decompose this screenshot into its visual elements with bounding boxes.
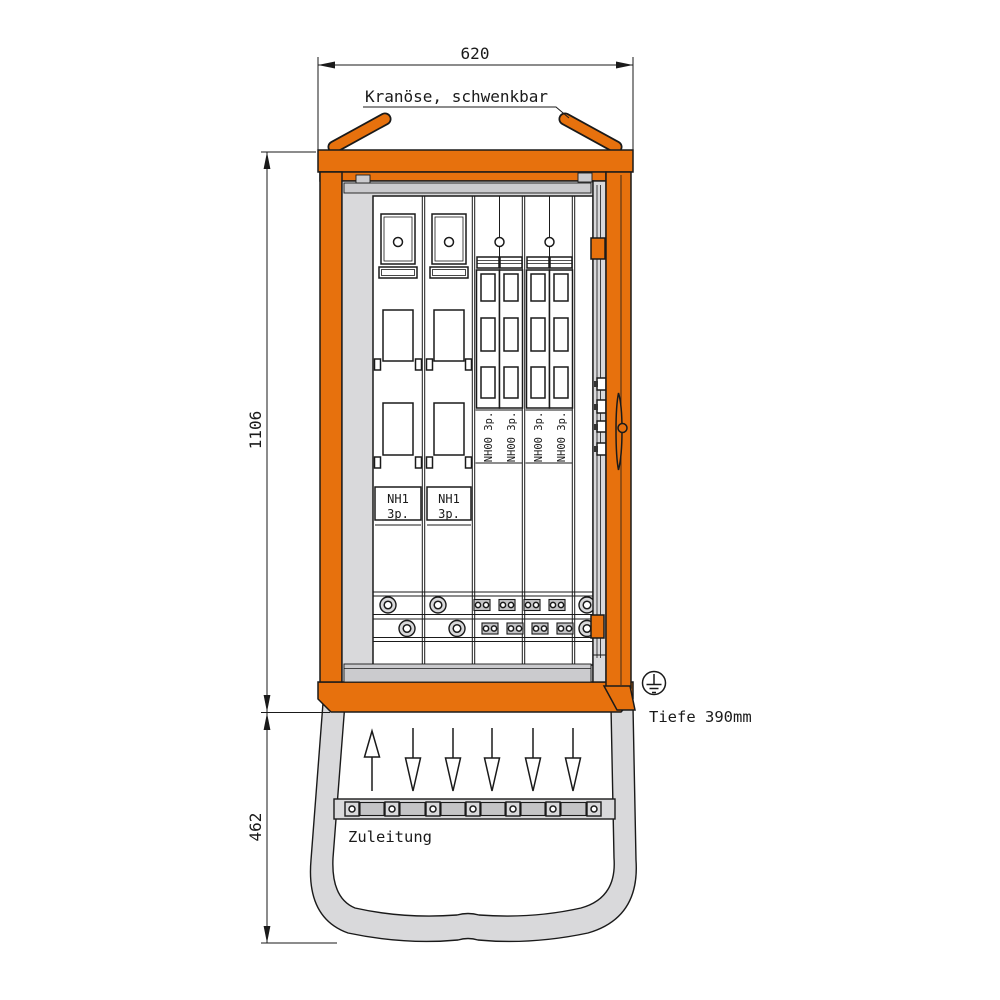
cable-entry-flap xyxy=(310,703,636,941)
interior-floor-strip xyxy=(344,664,591,682)
bolt xyxy=(380,597,396,613)
crane-eyelets xyxy=(334,119,616,147)
cable-clamp-rail xyxy=(334,799,615,819)
nh1-1-window-bottom xyxy=(383,403,413,455)
terminal-block xyxy=(524,600,540,611)
nh1-2-notch xyxy=(466,359,472,370)
nh00-knob-left-pair xyxy=(495,238,504,247)
cabinet-door xyxy=(604,172,635,710)
nh1-2-bar xyxy=(430,267,468,278)
interior-top-tab-right xyxy=(578,173,592,182)
terminal-block xyxy=(507,623,523,634)
roof-panel xyxy=(318,150,633,172)
nh00-strip-1-label: NH00 3p. xyxy=(483,412,495,463)
terminal-block xyxy=(474,600,490,611)
crane-note: Kranöse, schwenkbar xyxy=(363,87,569,118)
terminal-block xyxy=(549,600,565,611)
door-lock xyxy=(618,424,627,433)
door-hinge-strip xyxy=(591,181,606,682)
nh1-2-label-name: NH1 xyxy=(438,492,460,506)
nh1-1-notch xyxy=(416,457,422,468)
nh1-2-window-bottom xyxy=(434,403,464,455)
ground-symbol xyxy=(643,672,666,695)
nh1-2-notch xyxy=(427,359,433,370)
nh1-1-knob xyxy=(394,238,403,247)
dimension-body-height-value: 1106 xyxy=(246,411,265,450)
dimension-base-height-value: 462 xyxy=(246,813,265,842)
nh00-knob-right-pair xyxy=(545,238,554,247)
nh1-1-label-poles: 3p. xyxy=(387,507,409,521)
terminal-block xyxy=(482,623,498,634)
arrow-down xyxy=(485,728,500,791)
cabinet-roof xyxy=(318,150,633,172)
supply-label: Zuleitung xyxy=(348,828,432,846)
nh1-1-notch xyxy=(416,359,422,370)
bolt xyxy=(399,621,415,637)
dimension-body-height: 1106 xyxy=(246,152,330,713)
terminal-block xyxy=(499,600,515,611)
nh1-2-notch xyxy=(427,457,433,468)
nh1-1-bar xyxy=(379,267,417,278)
nh1-1-notch xyxy=(375,457,381,468)
bolt xyxy=(430,597,446,613)
nh1-2-window-top xyxy=(434,310,464,361)
hinge-latch-top xyxy=(591,238,605,259)
arrow-down xyxy=(566,728,581,791)
plinth-panel xyxy=(318,682,633,712)
nh1-1-window-top xyxy=(383,310,413,361)
crane-eyelet-right-fill xyxy=(565,119,616,147)
interior-top-tab-left xyxy=(356,175,370,183)
flap-tube xyxy=(310,703,636,941)
nh1-1-label-name: NH1 xyxy=(387,492,409,506)
bolt xyxy=(449,621,465,637)
depth-label: Tiefe 390mm xyxy=(649,708,752,726)
nh00-strip-4-label: NH00 3p. xyxy=(556,412,568,463)
wall-distribution-cabinet-drawing: NH1 3p. NH1 3p. NH00 3p. xyxy=(0,0,1000,1000)
arrow-up xyxy=(365,731,380,791)
crane-note-text: Kranöse, schwenkbar xyxy=(365,87,548,106)
arrow-down xyxy=(446,728,461,791)
arrow-down xyxy=(526,728,541,791)
terminal-block xyxy=(532,623,548,634)
nh1-2-label-poles: 3p. xyxy=(438,507,460,521)
flow-arrows xyxy=(365,728,581,791)
crane-eyelet-left-fill xyxy=(334,119,385,147)
drawing-canvas: NH1 3p. NH1 3p. NH00 3p. xyxy=(0,0,1000,1000)
nh1-2-notch xyxy=(466,457,472,468)
dimension-width-value: 620 xyxy=(461,44,490,63)
hinge-latch-bottom xyxy=(591,615,604,638)
base-plinth xyxy=(318,682,633,712)
nh00-strip-2-label: NH00 3p. xyxy=(506,412,518,463)
interior-top-rail xyxy=(344,183,591,193)
frame-left-post xyxy=(320,172,342,682)
nh00-strip-3-label: NH00 3p. xyxy=(533,412,545,463)
arrow-down xyxy=(406,728,421,791)
nh1-1-notch xyxy=(375,359,381,370)
nh1-2-knob xyxy=(445,238,454,247)
terminal-block xyxy=(557,623,573,634)
